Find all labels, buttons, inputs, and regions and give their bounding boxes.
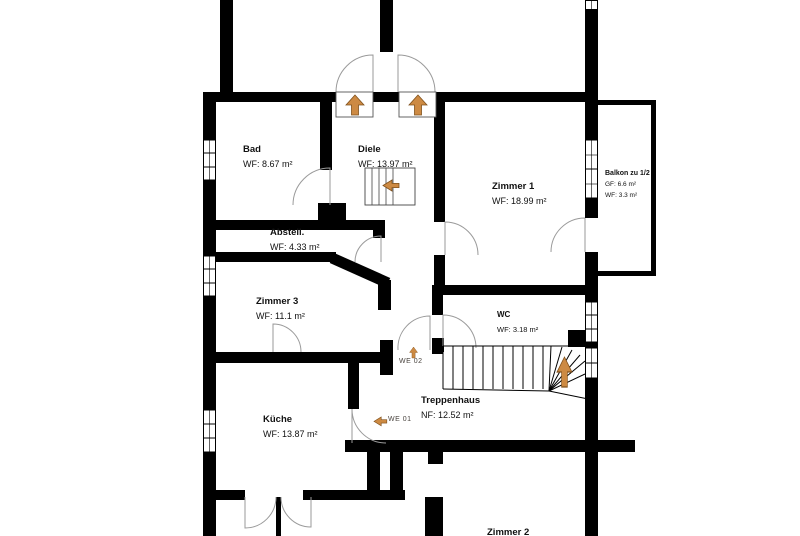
room-label-wc: WC WF: 3.18 m² <box>497 308 538 336</box>
marker-we02: WE 02 <box>399 358 423 365</box>
room-label-balkon: Balkon zu 1/2 GF: 6.6 m² WF: 3.3 m² <box>605 169 650 201</box>
window-icon <box>586 140 598 198</box>
window-icon <box>204 140 216 180</box>
marker-we01: WE 01 <box>388 416 412 423</box>
window-icon <box>586 302 598 342</box>
room-label-zimmer3: Zimmer 3 WF: 11.1 m² <box>256 295 305 323</box>
room-name: Balkon zu 1/2 <box>605 169 650 179</box>
room-area: WF: 4.33 m² <box>270 241 320 254</box>
staircase <box>443 346 598 401</box>
room-name: Küche <box>263 413 318 426</box>
walls <box>203 0 656 536</box>
room-area: WF: 3.3 m² <box>605 191 650 201</box>
room-label-diele: Diele WF: 13.97 m² <box>358 143 413 171</box>
room-label-treppenhaus: Treppenhaus NF: 12.52 m² <box>421 394 480 422</box>
room-label-kueche: Küche WF: 13.87 m² <box>263 413 318 441</box>
room-name: Diele <box>358 143 413 156</box>
room-area: WF: 13.97 m² <box>358 158 413 171</box>
window-icon <box>586 348 598 378</box>
room-name: Bad <box>243 143 293 156</box>
room-name: Abstell. <box>270 226 320 239</box>
room-area: GF: 6.6 m² <box>605 180 650 190</box>
room-name: Zimmer 3 <box>256 295 305 308</box>
room-area: WF: 18.99 m² <box>492 195 547 208</box>
room-label-zimmer1: Zimmer 1 WF: 18.99 m² <box>492 180 547 208</box>
room-area: WF: 8.67 m² <box>243 158 293 171</box>
room-area: WF: 3.18 m² <box>497 323 538 336</box>
room-label-bad: Bad WF: 8.67 m² <box>243 143 293 171</box>
window-icon <box>204 256 216 296</box>
room-name: WC <box>497 308 538 321</box>
room-name: Treppenhaus <box>421 394 480 407</box>
room-area: WF: 13.87 m² <box>263 428 318 441</box>
window-icon <box>204 410 216 452</box>
room-area: NF: 12.52 m² <box>421 409 480 422</box>
room-label-zimmer2: Zimmer 2 <box>487 526 529 536</box>
room-name: Zimmer 2 <box>487 526 529 536</box>
room-area: WF: 11.1 m² <box>256 310 305 323</box>
window-icon <box>586 1 598 10</box>
floorplan-drawing <box>0 0 800 536</box>
room-name: Zimmer 1 <box>492 180 547 193</box>
we02-arrow-up-icon <box>410 347 418 358</box>
floorplan-canvas: Bad WF: 8.67 m² Diele WF: 13.97 m² Zimme… <box>0 0 800 536</box>
room-label-abstell: Abstell. WF: 4.33 m² <box>270 226 320 254</box>
we01-arrow-left-icon <box>374 417 387 426</box>
